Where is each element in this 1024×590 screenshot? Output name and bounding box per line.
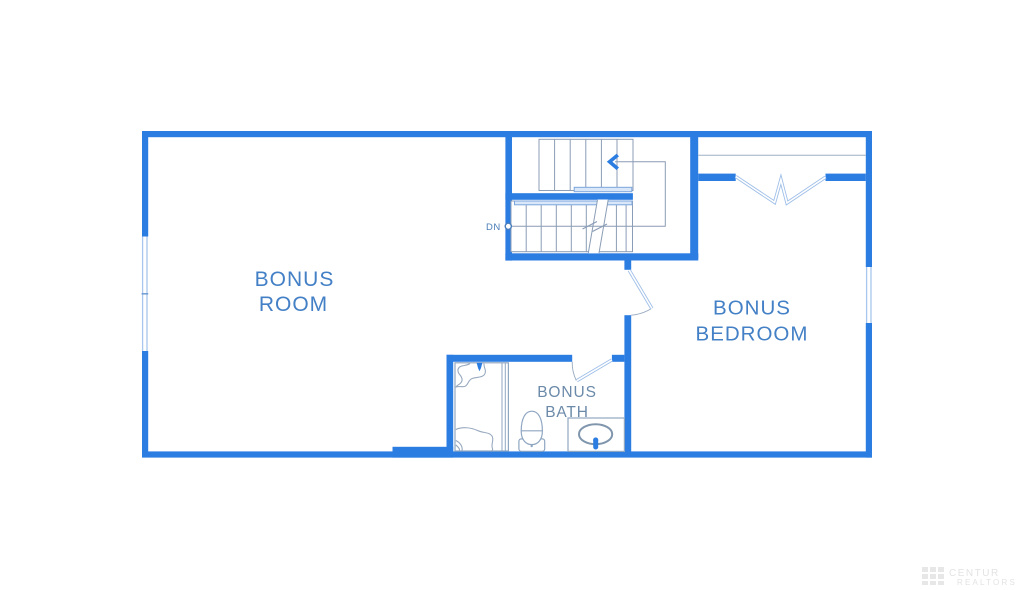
svg-text:BONUS: BONUS	[255, 268, 335, 291]
svg-text:BEDROOM: BEDROOM	[696, 322, 809, 345]
svg-text:DN: DN	[486, 222, 501, 233]
svg-text:BATH: BATH	[545, 404, 588, 421]
svg-text:ROOM: ROOM	[259, 293, 328, 316]
svg-text:BONUS: BONUS	[713, 297, 791, 320]
svg-text:BONUS: BONUS	[537, 384, 597, 401]
svg-text:REALTORS: REALTORS	[957, 578, 1017, 587]
